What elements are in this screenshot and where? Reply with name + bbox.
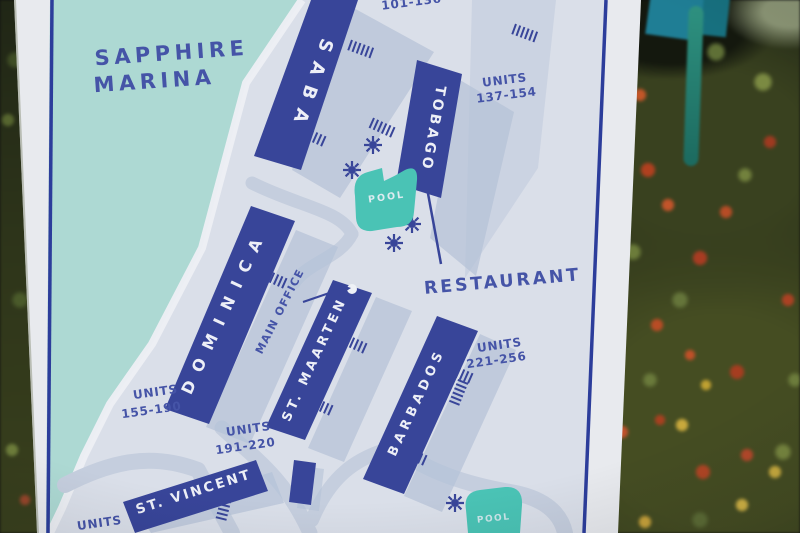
resort-map-sign: POOL POOL SAPPHIRE MARINA 101-136 UNITS … xyxy=(0,0,800,533)
map-panel: POOL POOL SAPPHIRE MARINA 101-136 UNITS … xyxy=(40,0,606,533)
map-sheen xyxy=(46,0,606,533)
photo-scene: POOL POOL SAPPHIRE MARINA 101-136 UNITS … xyxy=(0,0,800,533)
